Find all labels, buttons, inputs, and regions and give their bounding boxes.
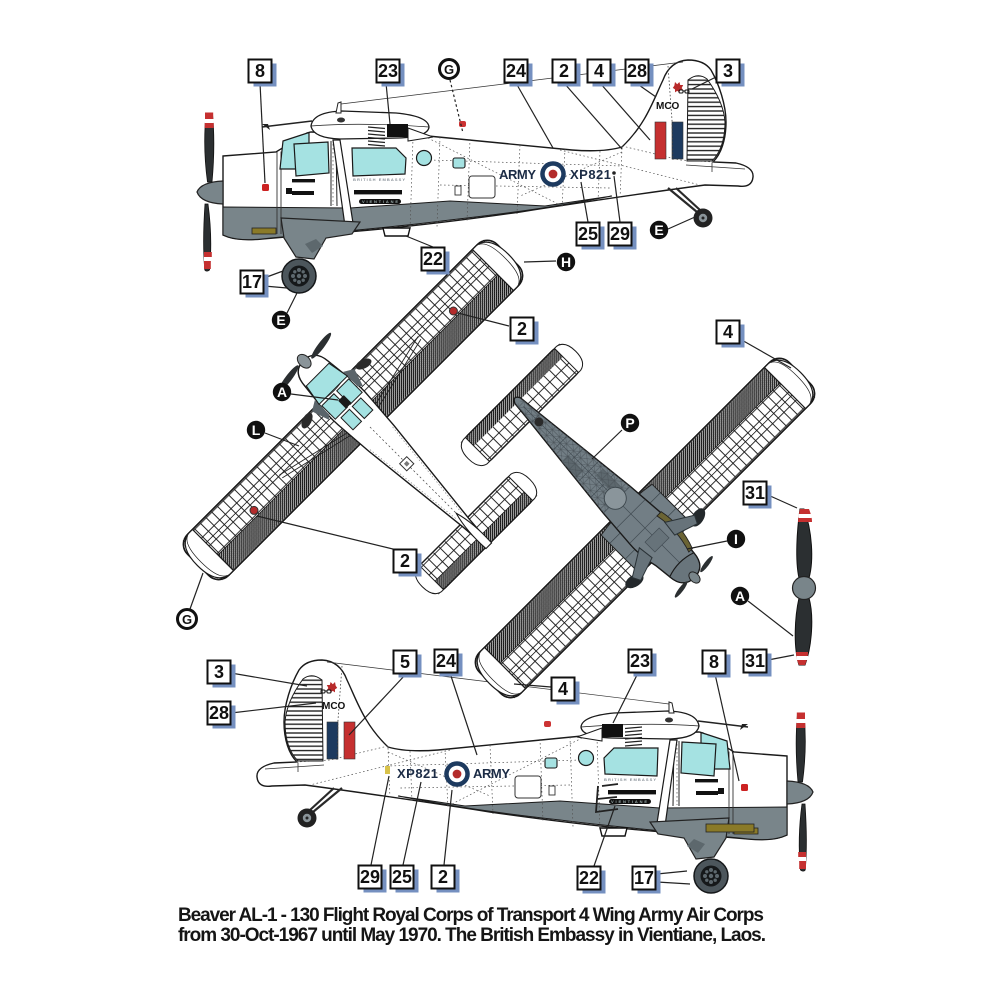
svg-text:A: A bbox=[735, 588, 745, 604]
svg-text:29: 29 bbox=[360, 867, 380, 887]
svg-text:22: 22 bbox=[579, 868, 599, 888]
svg-text:23: 23 bbox=[378, 61, 398, 81]
svg-text:2: 2 bbox=[438, 867, 448, 887]
svg-text:24: 24 bbox=[506, 61, 526, 81]
svg-text:31: 31 bbox=[745, 651, 765, 671]
svg-text:MCO: MCO bbox=[322, 701, 346, 712]
svg-text:23: 23 bbox=[630, 651, 650, 671]
svg-text:H: H bbox=[561, 254, 571, 270]
svg-text:A: A bbox=[277, 384, 287, 400]
svg-text:I: I bbox=[734, 531, 738, 547]
svg-text:5: 5 bbox=[400, 652, 410, 672]
svg-text:VIENTIANE: VIENTIANE bbox=[611, 799, 647, 804]
svg-text:E: E bbox=[654, 222, 663, 238]
svg-text:8: 8 bbox=[255, 61, 265, 81]
svg-text:28: 28 bbox=[209, 703, 229, 723]
svg-text:P: P bbox=[625, 415, 634, 431]
svg-text:MCO: MCO bbox=[656, 101, 680, 112]
svg-text:25: 25 bbox=[578, 224, 598, 244]
svg-text:24: 24 bbox=[436, 651, 456, 671]
svg-text:G: G bbox=[444, 62, 454, 77]
svg-text:3: 3 bbox=[214, 662, 224, 682]
svg-text:XP821: XP821 bbox=[570, 167, 611, 182]
svg-text:4: 4 bbox=[594, 61, 604, 81]
svg-text:BRITISH EMBASSY: BRITISH EMBASSY bbox=[353, 177, 405, 182]
svg-text:4: 4 bbox=[558, 679, 568, 699]
svg-text:BRITISH EMBASSY: BRITISH EMBASSY bbox=[604, 777, 656, 782]
svg-text:4: 4 bbox=[723, 322, 733, 342]
svg-text:ARMY: ARMY bbox=[473, 766, 510, 781]
svg-text:28: 28 bbox=[627, 61, 647, 81]
svg-text:8: 8 bbox=[709, 652, 719, 672]
svg-text:3: 3 bbox=[723, 61, 733, 81]
svg-text:2: 2 bbox=[517, 319, 527, 339]
svg-text:VIENTIANE: VIENTIANE bbox=[362, 199, 398, 204]
svg-text:G: G bbox=[182, 612, 192, 627]
svg-text:2: 2 bbox=[559, 61, 569, 81]
svg-text:ARMY: ARMY bbox=[499, 167, 536, 182]
svg-text:25: 25 bbox=[392, 867, 412, 887]
svg-text:31: 31 bbox=[745, 483, 765, 503]
svg-text:from 30-Oct-1967 until May 197: from 30-Oct-1967 until May 1970. The Bri… bbox=[178, 925, 766, 946]
svg-text:L: L bbox=[252, 422, 261, 438]
svg-text:22: 22 bbox=[423, 249, 443, 269]
svg-text:Beaver AL-1 - 130 Flight Royal: Beaver AL-1 - 130 Flight Royal Corps of … bbox=[178, 905, 764, 926]
svg-text:XP821: XP821 bbox=[397, 766, 438, 781]
svg-text:17: 17 bbox=[242, 272, 262, 292]
svg-text:E: E bbox=[276, 312, 285, 328]
svg-text:29: 29 bbox=[610, 224, 630, 244]
svg-text:2: 2 bbox=[400, 551, 410, 571]
svg-text:17: 17 bbox=[634, 868, 654, 888]
